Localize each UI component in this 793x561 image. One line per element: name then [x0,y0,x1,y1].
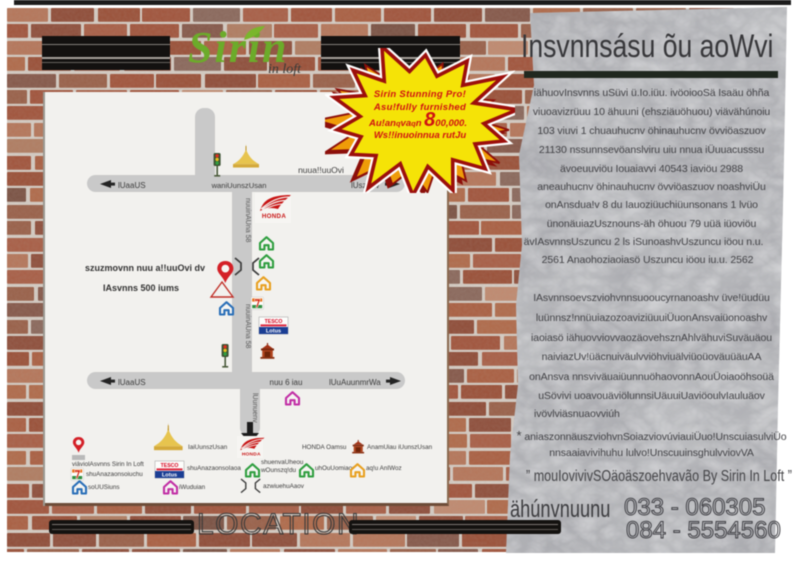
svg-text:azwiuehuAaov: azwiuehuAaov [263,483,305,490]
svg-text:shuAnazaonsoiuchu: shuAnazaonsoiuchu [86,471,143,478]
svg-text:wOunszq!du: wOunszq!du [260,467,296,474]
svg-text:IaiUunszUsan: IaiUunszUsan [188,444,228,451]
svg-text:nuuinAUna 58: nuuinAUna 58 [244,198,251,242]
svg-text:waniUunszUsan: waniUunszUsan [211,181,267,190]
svg-text:HONDA Oamsu: HONDA Oamsu [302,444,347,451]
svg-text:lUaaUS: lUaaUS [118,378,146,387]
svg-text:nuu 6 iau: nuu 6 iau [270,378,303,387]
svg-text:Asu!fully furnished: Asu!fully furnished [373,102,466,113]
svg-text:viāviolAsvnns Sirin In Loft: viāviolAsvnns Sirin In Loft [72,461,144,468]
svg-text:nuuinAUna 58: nuuinAUna 58 [244,304,251,348]
svg-text:shuAnazaonsoIaoa: shuAnazaonsoIaoa [187,465,241,472]
svg-text:lUuAuunmrWa: lUuAuunmrWa [329,378,381,387]
svg-text:Sirin Stunning Pro!: Sirin Stunning Pro! [374,89,466,100]
svg-text:aq!u AnIWoz: aq!u AnIWoz [366,465,402,472]
svg-text:soUUSiuns: soUUSiuns [88,484,120,491]
svg-text:szuzmovnn nuu a!!uuOvi dv: szuzmovnn nuu a!!uuOvi dv [85,263,205,273]
svg-text:uhOuUomiaos: uhOuUomiaos [315,465,355,472]
svg-text:IAsvnns 500 iums: IAsvnns 500 iums [103,283,179,293]
svg-text:Ws!!inuoinnua rutJu: Ws!!inuoinnua rutJu [374,130,467,141]
svg-text:lUaaUS: lUaaUS [118,181,146,190]
svg-text:iWuduian: iWuduian [179,484,206,491]
svg-text:lUunuenv: lUunuenv [251,393,258,423]
svg-text:AnamUiau iUunszUsan: AnamUiau iUunszUsan [367,444,433,451]
svg-text:shuenvaUheou: shuenvaUheou [261,459,304,466]
